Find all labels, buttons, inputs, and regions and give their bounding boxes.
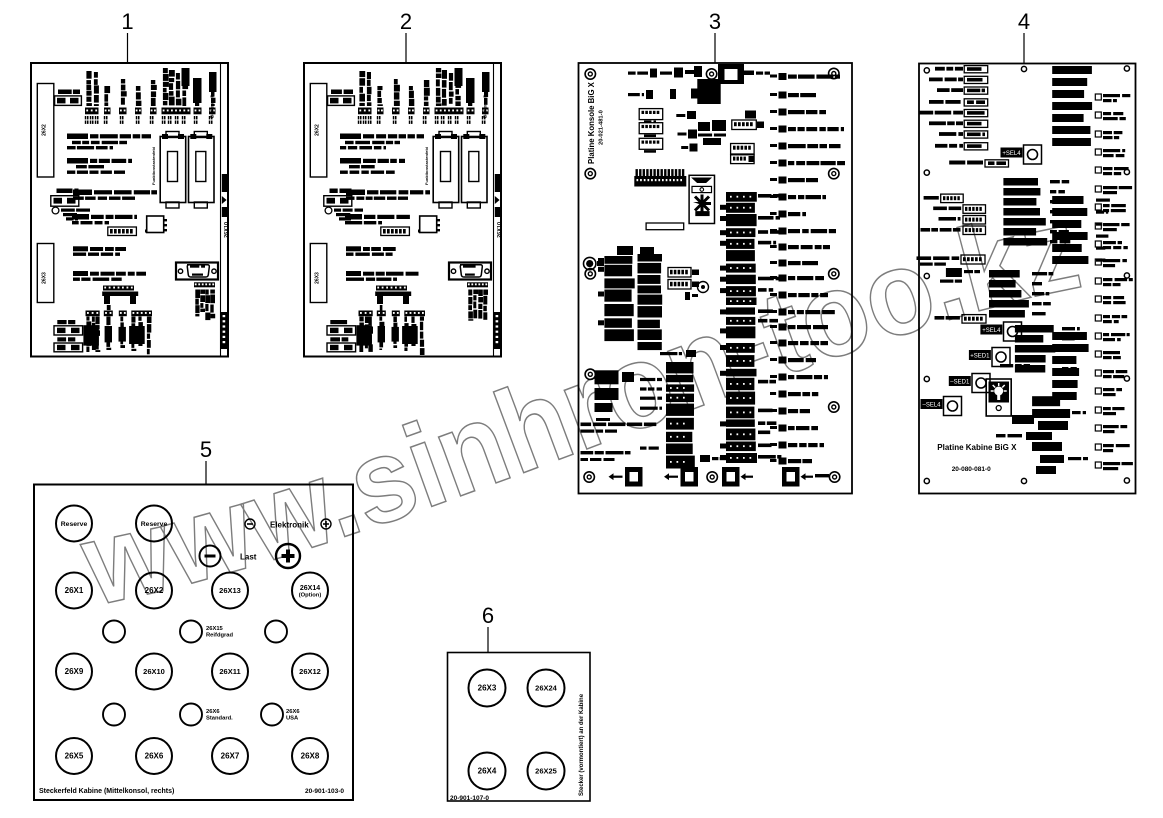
svg-text:3: 3 xyxy=(709,9,721,34)
svg-text:+SED1: +SED1 xyxy=(970,354,990,360)
svg-text:26X3: 26X3 xyxy=(478,683,497,692)
svg-text:26X12: 26X12 xyxy=(299,667,321,676)
svg-text:20-901-103-0: 20-901-103-0 xyxy=(305,788,344,795)
svg-text:26X8: 26X8 xyxy=(301,751,320,760)
svg-text:26X10: 26X10 xyxy=(497,222,503,238)
svg-text:USA: USA xyxy=(286,716,299,722)
svg-text:–SEL4: –SEL4 xyxy=(922,403,941,409)
svg-text:4: 4 xyxy=(1018,9,1030,34)
svg-text:Reserve: Reserve xyxy=(61,521,88,528)
svg-text:+SEL4: +SEL4 xyxy=(1002,151,1021,157)
svg-text:26X14: 26X14 xyxy=(300,585,320,592)
svg-text:Stecker (vormontiert) an der K: Stecker (vormontiert) an der Kabine xyxy=(579,693,585,796)
svg-text:26X5: 26X5 xyxy=(65,751,84,760)
svg-text:26X6: 26X6 xyxy=(286,709,300,715)
svg-text:Funktionstastenfeld: Funktionstastenfeld xyxy=(424,146,429,185)
svg-text:Last: Last xyxy=(240,553,257,562)
svg-text:26X10: 26X10 xyxy=(224,222,230,238)
svg-text:26X3: 26X3 xyxy=(42,272,48,284)
svg-text:Bedienpultplatine: Bedienpultplatine xyxy=(483,80,488,118)
svg-text:26X13: 26X13 xyxy=(219,586,241,595)
svg-text:26X25: 26X25 xyxy=(535,766,557,775)
svg-text:Elektronik: Elektronik xyxy=(270,521,309,530)
svg-text:26X9: 26X9 xyxy=(65,667,84,676)
svg-text:26X10: 26X10 xyxy=(143,667,165,676)
svg-text:Steckerfeld Kabine (Mittelkons: Steckerfeld Kabine (Mittelkonsol, rechts… xyxy=(39,788,174,795)
svg-text:20-021-481-0: 20-021-481-0 xyxy=(599,110,605,145)
svg-text:26X1: 26X1 xyxy=(65,586,84,595)
svg-text:26X4: 26X4 xyxy=(478,766,497,775)
svg-text:Reserve: Reserve xyxy=(141,521,168,528)
svg-text:26X6: 26X6 xyxy=(145,751,164,760)
svg-text:Bedienpultplatine: Bedienpultplatine xyxy=(210,80,215,118)
svg-text:26X3: 26X3 xyxy=(315,272,321,284)
svg-text:Platine Kabine BiG X: Platine Kabine BiG X xyxy=(937,443,1017,452)
svg-text:26X2: 26X2 xyxy=(145,586,164,595)
svg-text:20-080-081-0: 20-080-081-0 xyxy=(952,466,991,473)
svg-text:26X24: 26X24 xyxy=(535,683,558,692)
svg-text:(Option): (Option) xyxy=(299,593,322,599)
svg-text:26X6: 26X6 xyxy=(206,709,220,715)
svg-text:1: 1 xyxy=(121,9,133,34)
svg-text:6: 6 xyxy=(482,603,494,628)
svg-text:–SED1: –SED1 xyxy=(950,380,970,386)
svg-text:5: 5 xyxy=(200,437,212,462)
svg-text:26X7: 26X7 xyxy=(221,751,240,760)
svg-text:Standard.: Standard. xyxy=(206,716,233,722)
svg-text:Funktionstastenfeld: Funktionstastenfeld xyxy=(151,146,156,185)
svg-text:Platine Konsole BiG X: Platine Konsole BiG X xyxy=(587,81,596,164)
svg-text:2: 2 xyxy=(400,9,412,34)
svg-text:26X2: 26X2 xyxy=(42,124,48,136)
svg-text:26X11: 26X11 xyxy=(219,667,240,676)
svg-text:26X15: 26X15 xyxy=(206,626,224,632)
svg-text:26X2: 26X2 xyxy=(315,124,321,136)
svg-text:Reifdgrad: Reifdgrad xyxy=(206,633,234,639)
svg-text:+SEL4: +SEL4 xyxy=(982,328,1001,334)
svg-text:20-901-107-0: 20-901-107-0 xyxy=(450,795,489,802)
